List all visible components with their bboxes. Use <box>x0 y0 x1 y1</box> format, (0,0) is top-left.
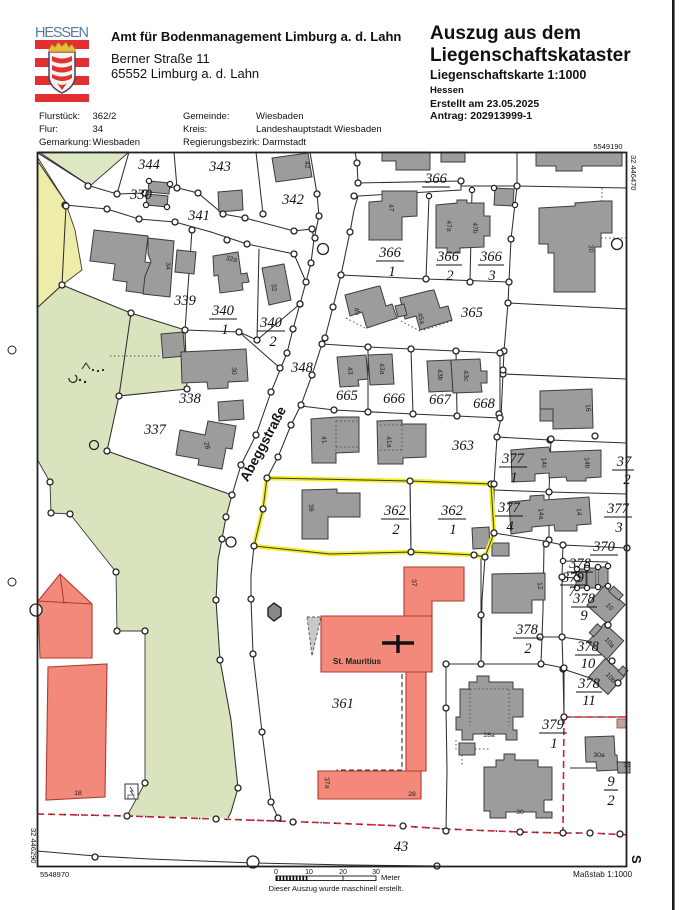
svg-text:3: 3 <box>487 268 495 284</box>
svg-text:Dieser Auszug wurde maschinell: Dieser Auszug wurde maschinell erstellt. <box>269 884 404 893</box>
svg-text:378: 378 <box>572 591 596 607</box>
svg-text:43a: 43a <box>378 363 386 375</box>
svg-text:377: 377 <box>497 500 521 516</box>
svg-text:366: 366 <box>378 245 402 261</box>
svg-text:14a: 14a <box>537 508 545 520</box>
svg-text:339: 339 <box>173 293 197 309</box>
svg-text:14b: 14b <box>583 457 591 469</box>
svg-text:32 446290: 32 446290 <box>29 828 38 863</box>
svg-text:Maßstab 1:1000: Maßstab 1:1000 <box>573 870 633 879</box>
svg-text:1: 1 <box>388 264 395 280</box>
svg-text:370: 370 <box>592 539 616 555</box>
svg-text:342: 342 <box>281 192 304 208</box>
svg-text:20: 20 <box>339 869 347 876</box>
svg-text:43c: 43c <box>462 370 470 382</box>
svg-text:47: 47 <box>387 204 395 212</box>
svg-text:337: 337 <box>143 422 167 438</box>
svg-text:2: 2 <box>269 334 276 350</box>
svg-text:1: 1 <box>550 736 557 752</box>
svg-text:28: 28 <box>408 791 416 798</box>
svg-text:362: 362 <box>440 503 463 519</box>
svg-text:43: 43 <box>394 839 409 855</box>
svg-text:341: 341 <box>187 208 210 224</box>
svg-text:2: 2 <box>607 793 614 809</box>
svg-text:10: 10 <box>581 656 596 672</box>
svg-text:3: 3 <box>614 520 622 536</box>
svg-text:14: 14 <box>575 508 583 516</box>
svg-text:340: 340 <box>211 303 235 319</box>
svg-text:30: 30 <box>372 869 380 876</box>
svg-text:665: 665 <box>336 388 358 404</box>
svg-text:37: 37 <box>410 579 418 587</box>
svg-text:9: 9 <box>580 608 588 624</box>
svg-text:16: 16 <box>584 404 592 412</box>
svg-text:9: 9 <box>607 774 615 790</box>
svg-text:668: 668 <box>473 396 496 412</box>
svg-text:2: 2 <box>446 268 453 284</box>
svg-text:348: 348 <box>290 360 314 376</box>
svg-text:41: 41 <box>320 436 328 444</box>
svg-text:1: 1 <box>510 470 517 486</box>
svg-text:30: 30 <box>230 367 237 375</box>
svg-text:37a: 37a <box>323 777 331 789</box>
svg-text:2: 2 <box>392 522 399 538</box>
svg-text:0: 0 <box>274 869 278 876</box>
svg-text:39: 39 <box>307 504 315 512</box>
svg-text:379: 379 <box>541 717 565 733</box>
svg-text:47a: 47a <box>445 220 452 232</box>
svg-text:32: 32 <box>269 283 277 292</box>
svg-text:45a: 45a <box>416 312 426 325</box>
svg-text:34: 34 <box>164 262 171 270</box>
svg-text:365: 365 <box>460 305 483 321</box>
svg-text:18: 18 <box>74 790 82 797</box>
svg-text:366: 366 <box>424 171 448 187</box>
svg-text:20: 20 <box>587 245 595 253</box>
svg-text:11: 11 <box>582 693 595 709</box>
svg-text:12: 12 <box>536 582 544 590</box>
svg-text:1: 1 <box>221 322 228 338</box>
svg-text:666: 666 <box>383 391 406 407</box>
svg-text:30a: 30a <box>593 752 605 759</box>
svg-text:42: 42 <box>303 161 311 169</box>
svg-text:2: 2 <box>524 641 531 657</box>
svg-text:363: 363 <box>451 438 474 454</box>
svg-text:378: 378 <box>515 622 539 638</box>
svg-text:47b: 47b <box>471 222 478 234</box>
svg-text:32 446470: 32 446470 <box>629 155 638 190</box>
svg-text:St. Mauritius: St. Mauritius <box>333 657 382 666</box>
svg-text:366: 366 <box>479 249 503 265</box>
svg-text:5549190: 5549190 <box>593 142 622 151</box>
svg-text:4: 4 <box>506 519 513 535</box>
svg-text:344: 344 <box>137 157 160 173</box>
svg-text:378: 378 <box>576 639 600 655</box>
svg-text:14c: 14c <box>540 457 548 469</box>
svg-text:30: 30 <box>516 809 524 816</box>
svg-text:Meter: Meter <box>381 873 401 882</box>
svg-text:378: 378 <box>577 676 601 692</box>
svg-text:338: 338 <box>178 391 202 407</box>
svg-text:366: 366 <box>436 249 460 265</box>
svg-text:1: 1 <box>449 522 456 538</box>
svg-text:362: 362 <box>383 503 406 519</box>
svg-text:37: 37 <box>616 454 632 470</box>
svg-text:361: 361 <box>331 696 354 712</box>
svg-text:43b: 43b <box>436 369 444 381</box>
svg-text:5548970: 5548970 <box>40 870 69 879</box>
svg-text:377: 377 <box>501 451 525 467</box>
svg-text:28a: 28a <box>483 732 495 739</box>
svg-text:340: 340 <box>259 315 283 331</box>
svg-text:343: 343 <box>208 159 231 175</box>
svg-text:41a: 41a <box>385 436 393 448</box>
svg-text:667: 667 <box>429 392 452 408</box>
svg-text:10: 10 <box>305 869 313 876</box>
svg-text:S: S <box>629 855 644 864</box>
svg-text:43: 43 <box>346 367 354 375</box>
svg-text:330: 330 <box>129 187 153 203</box>
